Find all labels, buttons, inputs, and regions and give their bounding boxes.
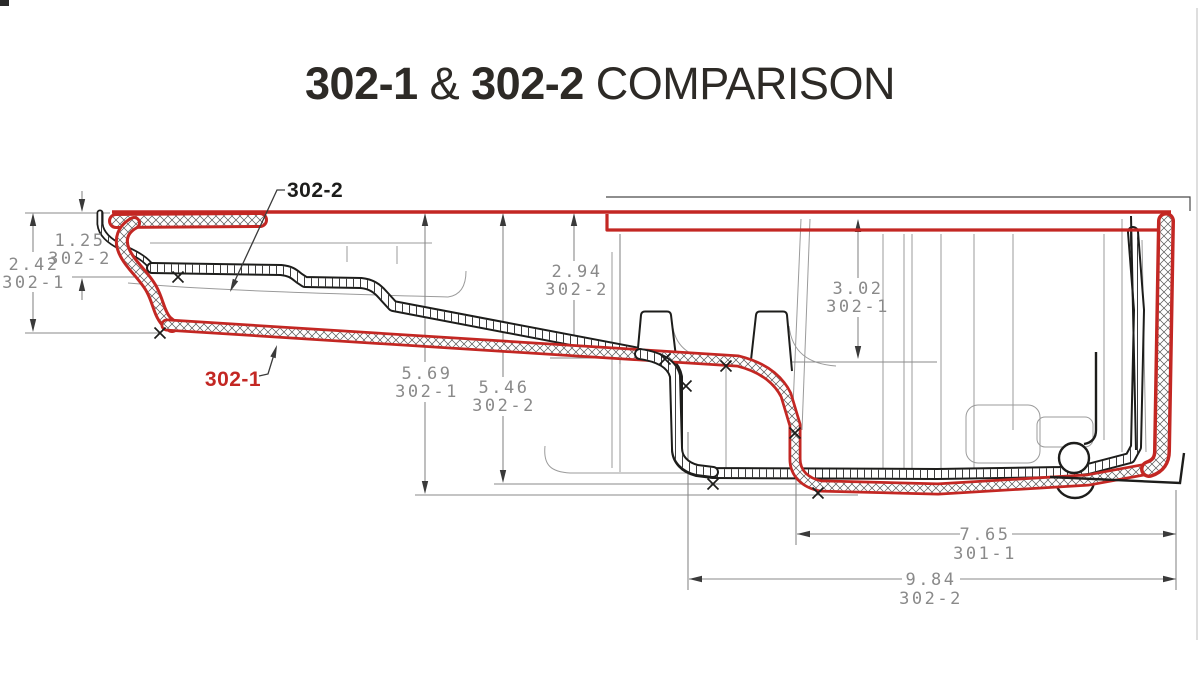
- dim-part: 302-1: [2, 273, 66, 293]
- title-part-2: 302-2: [471, 58, 584, 109]
- dim-part: 302-1: [395, 382, 459, 402]
- dim-part: 302-2: [545, 280, 609, 300]
- pan-302-2-label: 302-2: [287, 179, 343, 202]
- page-title: 302-1 & 302-2 COMPARISON: [305, 58, 895, 109]
- pan-302-2-section: [100, 197, 1190, 498]
- technical-drawing: 302-2 302-1 1.25 302-2 2.42 302-1 2.94 3…: [0, 0, 1200, 686]
- dim-value: 2.94: [552, 262, 603, 282]
- dim-value: 5.46: [479, 378, 530, 398]
- dim-value: 7.65: [960, 525, 1011, 545]
- dim-2-42: 2.42 302-1: [2, 255, 66, 293]
- dim-part: 301-1: [953, 544, 1017, 564]
- drain-plug: [1059, 443, 1089, 473]
- dim-value: 9.84: [906, 570, 957, 590]
- red-inner-rail-line: [607, 214, 1158, 230]
- dim-3-02: 3.02 302-1: [826, 279, 890, 317]
- pan-302-1-label: 302-1: [205, 368, 261, 391]
- dim-5-46: 5.46 302-2: [472, 378, 536, 416]
- dim-value: 1.25: [55, 231, 106, 251]
- dim-9-84: 9.84 302-2: [899, 570, 963, 609]
- title-separator: &: [418, 58, 472, 109]
- drawing-sheet: 302-2 302-1 1.25 302-2 2.42 302-1 2.94 3…: [0, 0, 1200, 686]
- dim-value: 2.42: [9, 255, 60, 275]
- dim-value: 3.02: [833, 279, 884, 299]
- scan-artifact: [0, 0, 9, 6]
- dim-part: 302-2: [472, 396, 536, 416]
- dim-7-65: 7.65 301-1: [953, 525, 1017, 564]
- dim-part: 302-1: [826, 297, 890, 317]
- title-part-1: 302-1: [305, 58, 418, 109]
- title-tail: COMPARISON: [584, 58, 895, 109]
- dim-2-94: 2.94 302-2: [545, 262, 609, 300]
- label-302-1: 302-1: [205, 345, 277, 391]
- dim-value: 5.69: [402, 364, 453, 384]
- dim-5-69: 5.69 302-1: [395, 364, 459, 402]
- dim-part: 302-2: [899, 589, 963, 609]
